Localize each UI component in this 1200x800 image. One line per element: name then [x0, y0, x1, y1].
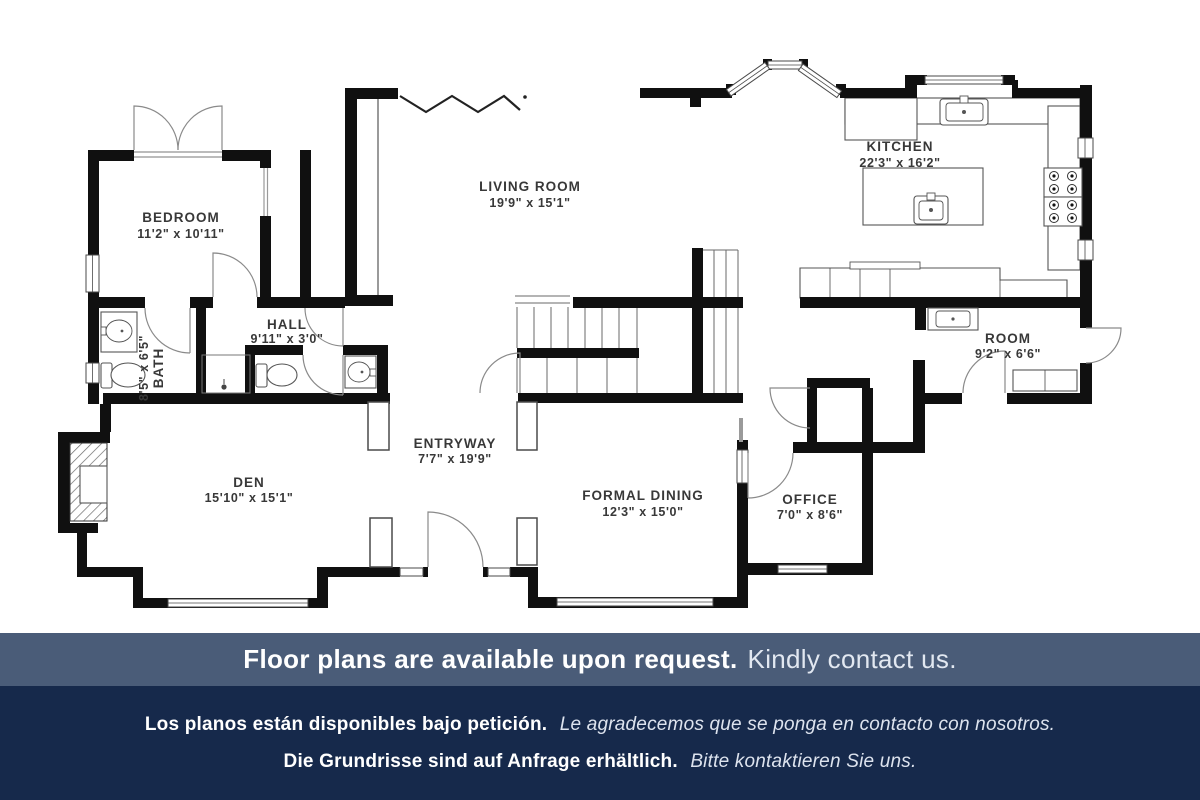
- fireplace: [70, 443, 107, 521]
- svg-text:9'11" x 3'0": 9'11" x 3'0": [251, 332, 324, 346]
- banner-german: Die Grundrisse sind auf Anfrage erhältli…: [284, 751, 917, 773]
- wc-vanity-sink: [345, 356, 376, 388]
- room-label-entryway: ENTRYWAY 7'7" x 19'9": [414, 436, 497, 466]
- banner-spanish-bold: Los planos están disponibles bajo petici…: [145, 714, 547, 735]
- room-label-office: OFFICE 7'0" x 8'6": [777, 492, 843, 522]
- svg-text:KITCHEN: KITCHEN: [867, 139, 934, 154]
- svg-text:ROOM: ROOM: [985, 331, 1031, 346]
- svg-text:19'9" x 15'1": 19'9" x 15'1": [489, 196, 570, 210]
- banner-german-bold: Die Grundrisse sind auf Anfrage erhältli…: [284, 751, 678, 772]
- room-label-bedroom: BEDROOM 11'2" x 10'11": [137, 210, 224, 241]
- svg-text:22'3" x 16'2": 22'3" x 16'2": [859, 156, 940, 170]
- banner-international: Los planos están disponibles bajo petici…: [0, 686, 1200, 800]
- svg-text:DEN: DEN: [233, 475, 265, 490]
- banner-german-italic: Bitte kontaktieren Sie uns.: [690, 751, 916, 772]
- room-label-room: ROOM 9'2" x 6'6": [975, 331, 1041, 361]
- svg-text:OFFICE: OFFICE: [782, 492, 838, 507]
- svg-text:12'3" x 15'0": 12'3" x 15'0": [602, 505, 683, 519]
- entry-piers: [368, 402, 537, 567]
- room-label-bath: BATH 8'5" x 6'5": [137, 335, 166, 401]
- walls: [58, 59, 1092, 608]
- svg-text:HALL: HALL: [267, 317, 307, 332]
- staircase: [515, 250, 738, 393]
- floor-plan: BEDROOM 11'2" x 10'11" LIVING ROOM 19'9"…: [0, 0, 1200, 633]
- room-sink: [928, 308, 978, 330]
- svg-text:15'10" x 15'1": 15'10" x 15'1": [205, 491, 294, 505]
- svg-text:7'7" x 19'9": 7'7" x 19'9": [418, 452, 492, 466]
- svg-text:BATH: BATH: [151, 348, 166, 389]
- kitchen-sink: [940, 96, 988, 125]
- bath-vanity-sink: [101, 312, 137, 352]
- cooktop-range: [1044, 168, 1082, 226]
- svg-text:9'2" x 6'6": 9'2" x 6'6": [975, 347, 1041, 361]
- svg-text:8'5" x 6'5": 8'5" x 6'5": [137, 335, 151, 401]
- room-label-kitchen: KITCHEN 22'3" x 16'2": [859, 139, 940, 170]
- svg-text:11'2" x 10'11": 11'2" x 10'11": [137, 227, 224, 241]
- svg-text:FORMAL DINING: FORMAL DINING: [582, 488, 704, 503]
- floorplan-page: BEDROOM 11'2" x 10'11" LIVING ROOM 19'9"…: [0, 0, 1200, 800]
- banner-english: Floor plans are available upon request. …: [0, 633, 1200, 686]
- banner-spanish-italic: Le agradecemos que se ponga en contacto …: [560, 714, 1055, 735]
- banner-english-regular: Kindly contact us.: [748, 644, 957, 675]
- shower-stall: [202, 355, 250, 393]
- windows: [86, 61, 1093, 607]
- room-label-den: DEN 15'10" x 15'1": [205, 475, 294, 505]
- room-label-formal-dining: FORMAL DINING 12'3" x 15'0": [582, 488, 704, 519]
- room-label-living-room: LIVING ROOM 19'9" x 15'1": [479, 179, 581, 210]
- svg-text:LIVING ROOM: LIVING ROOM: [479, 179, 581, 194]
- banner-spanish: Los planos están disponibles bajo petici…: [145, 714, 1055, 736]
- wc-toilet: [256, 364, 297, 387]
- floor-plan-drawing: BEDROOM 11'2" x 10'11" LIVING ROOM 19'9"…: [0, 0, 1200, 633]
- svg-text:BEDROOM: BEDROOM: [142, 210, 220, 225]
- svg-text:7'0" x 8'6": 7'0" x 8'6": [777, 508, 843, 522]
- room-bench: [1013, 370, 1077, 391]
- svg-text:ENTRYWAY: ENTRYWAY: [414, 436, 497, 451]
- banner-english-bold: Floor plans are available upon request.: [243, 644, 737, 675]
- kitchen-island: [863, 168, 983, 225]
- room-label-hall: HALL 9'11" x 3'0": [251, 317, 324, 346]
